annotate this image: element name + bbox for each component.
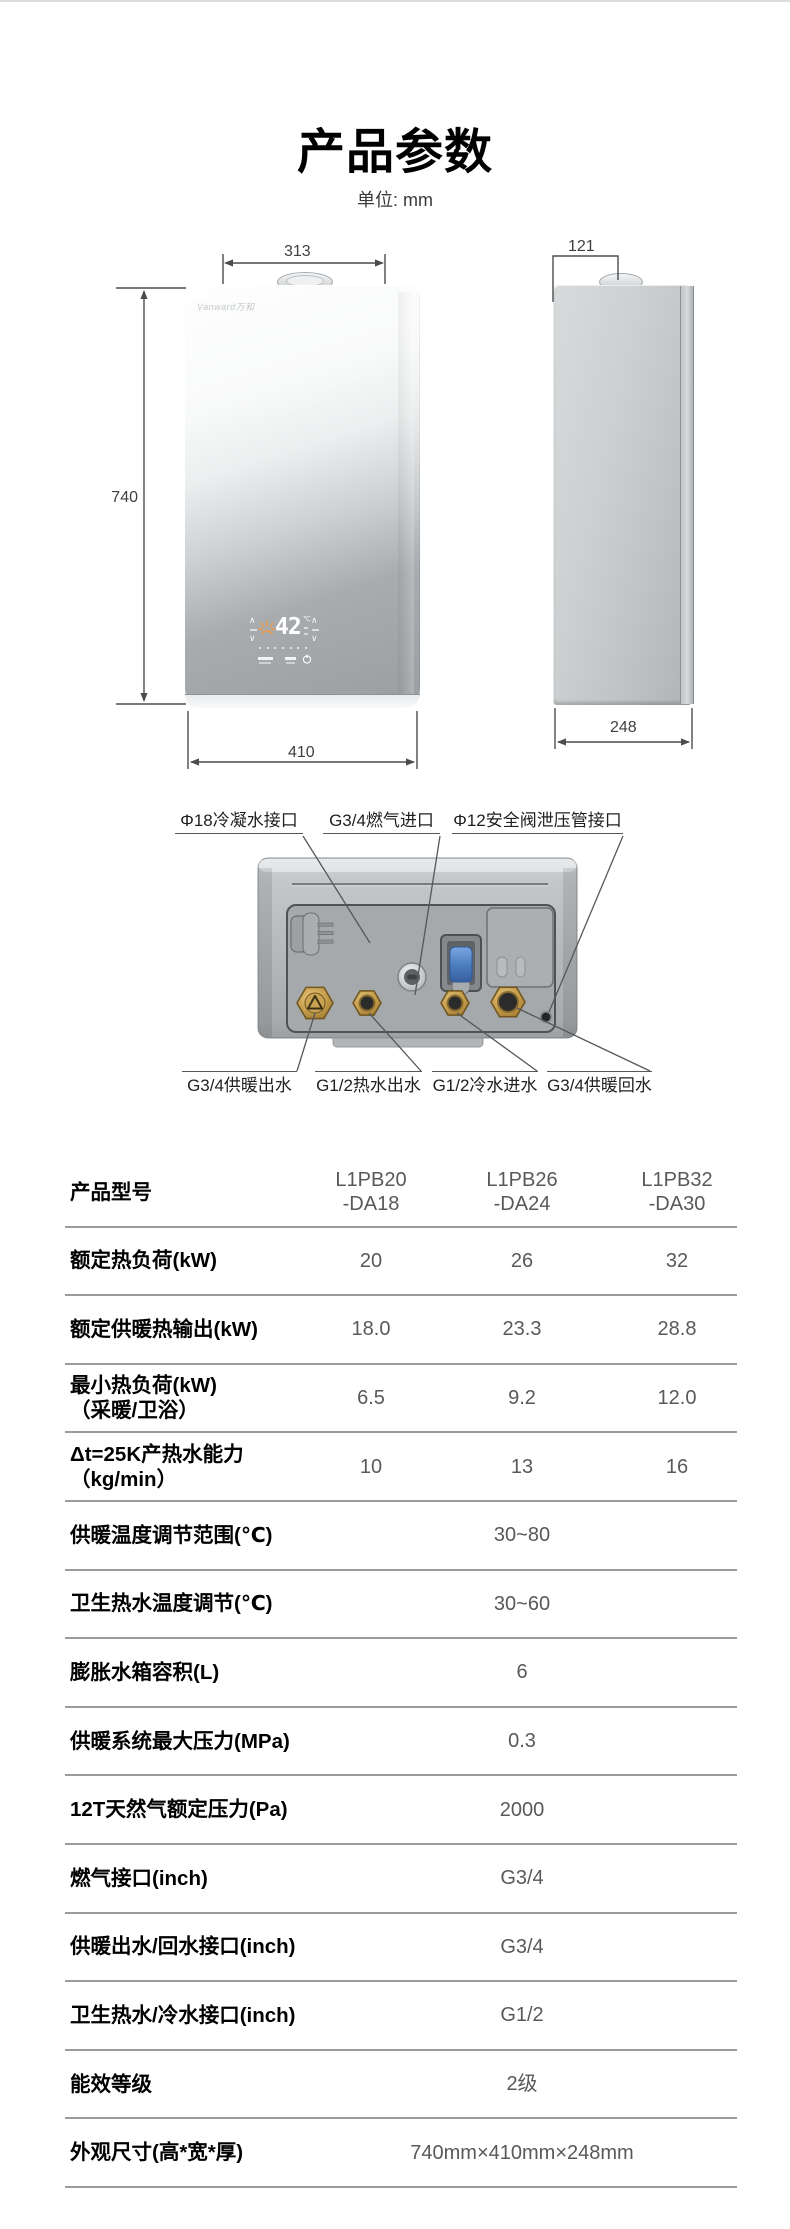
table-row: 能效等级 2级 xyxy=(65,2051,737,2120)
spec-value: G3/4 xyxy=(322,1935,722,1959)
bottom-view-device xyxy=(258,858,577,1047)
dim-front-bottom-width: 410 xyxy=(288,744,315,762)
spec-label: 卫生热水/冷水接口(inch) xyxy=(65,2003,296,2028)
spec-label: 燃气接口(inch) xyxy=(65,1866,208,1891)
safety-valve xyxy=(441,935,481,995)
spec-value: 740mm×410mm×248mm xyxy=(322,2141,722,2165)
spec-value: 13 xyxy=(447,1455,597,1479)
label-heating-return: G3/4供暖回水 xyxy=(547,1071,652,1095)
spec-value: 26 xyxy=(447,1249,597,1273)
dim-lines-side-top xyxy=(553,256,618,302)
label-gas-inlet: G3/4燃气进口 xyxy=(323,811,440,834)
table-row: 燃气接口(inch) G3/4 xyxy=(65,1845,737,1914)
table-row: 额定供暖热输出(kW) 18.0 23.3 28.8 xyxy=(65,1296,737,1365)
spec-value: 2000 xyxy=(322,1798,722,1822)
dim-front-height: 740 xyxy=(104,489,138,507)
spec-label: 供暖温度调节范围(℃) xyxy=(65,1523,272,1548)
dim-side-top-depth: 121 xyxy=(568,238,595,256)
spec-label: 供暖出水/回水接口(inch) xyxy=(65,1934,296,1959)
drain-fitting xyxy=(398,963,426,991)
spec-label: 额定供暖热输出(kW) xyxy=(65,1317,258,1342)
table-row: 供暖温度调节范围(℃) 30~80 xyxy=(65,1502,737,1571)
model-name: L1PB32-DA30 xyxy=(602,1168,752,1216)
spec-value: 6.5 xyxy=(296,1386,446,1410)
spec-value: G3/4 xyxy=(322,1866,722,1890)
spec-value: 16 xyxy=(602,1455,752,1479)
product-spec-page: 产品参数 单位: mm Vanward万和 ∧ ∨ 42 ℃ ∧ ∨ xyxy=(0,0,790,2229)
table-row: 供暖出水/回水接口(inch) G3/4 xyxy=(65,1914,737,1983)
spec-value: 18.0 xyxy=(296,1317,446,1341)
dim-side-bottom-depth: 248 xyxy=(610,719,637,737)
label-hot-water-outlet: G1/2热水出水 xyxy=(315,1071,422,1095)
spec-label: Δt=25K产热水能力（kg/min） xyxy=(65,1442,244,1492)
spec-value: 23.3 xyxy=(447,1317,597,1341)
dim-front-top-width: 313 xyxy=(284,243,311,261)
table-row: 外观尺寸(高*宽*厚) 740mm×410mm×248mm xyxy=(65,2119,737,2188)
cold-water-inlet-fitting xyxy=(441,991,469,1015)
spec-value: 2级 xyxy=(322,2072,722,2096)
spec-value: 30~80 xyxy=(322,1523,722,1547)
label-cold-water-inlet: G1/2冷水进水 xyxy=(432,1071,538,1095)
model-name: L1PB26-DA24 xyxy=(447,1168,597,1216)
table-row: 额定热负荷(kW) 20 26 32 xyxy=(65,1228,737,1297)
spec-value: 32 xyxy=(602,1249,752,1273)
spec-label: 12T天然气额定压力(Pa) xyxy=(65,1797,288,1822)
spec-label: 产品型号 xyxy=(65,1180,152,1205)
spec-value: 30~60 xyxy=(322,1592,722,1616)
heating-return-fitting xyxy=(491,987,525,1016)
spec-value: 6 xyxy=(322,1660,722,1684)
model-name: L1PB20-DA18 xyxy=(296,1168,446,1216)
label-condensate-port: Φ18冷凝水接口 xyxy=(175,811,303,834)
table-row: 12T天然气额定压力(Pa) 2000 xyxy=(65,1776,737,1845)
hot-water-outlet-fitting xyxy=(353,991,381,1015)
table-row: 卫生热水温度调节(℃) 30~60 xyxy=(65,1571,737,1640)
safety-valve-discharge-hole xyxy=(541,1012,552,1023)
spec-value: 10 xyxy=(296,1455,446,1479)
table-row: 膨胀水箱容积(L) 6 xyxy=(65,1639,737,1708)
spec-label: 卫生热水温度调节(℃) xyxy=(65,1591,272,1616)
table-row: Δt=25K产热水能力（kg/min） 10 13 16 xyxy=(65,1433,737,1502)
annotation-and-bottom-view-svg xyxy=(0,0,790,1110)
table-header-row: 产品型号 L1PB20-DA18 L1PB26-DA24 L1PB32-DA30 xyxy=(65,1159,737,1228)
table-row: 供暖系统最大压力(MPa) 0.3 xyxy=(65,1708,737,1777)
spec-value: 20 xyxy=(296,1249,446,1273)
spec-label: 额定热负荷(kW) xyxy=(65,1248,217,1273)
spec-value: 28.8 xyxy=(602,1317,752,1341)
spec-label: 能效等级 xyxy=(65,2072,152,2097)
label-safety-valve-port: Φ12安全阀泄压管接口 xyxy=(452,811,623,834)
spec-label: 最小热负荷(kW)（采暖/卫浴） xyxy=(65,1373,217,1423)
spec-label: 供暖系统最大压力(MPa) xyxy=(65,1729,290,1754)
spec-label: 膨胀水箱容积(L) xyxy=(65,1660,219,1685)
spec-value: 0.3 xyxy=(322,1729,722,1753)
spec-value: 12.0 xyxy=(602,1386,752,1410)
spec-value: 9.2 xyxy=(447,1386,597,1410)
spec-label: 外观尺寸(高*宽*厚) xyxy=(65,2140,243,2165)
table-row: 最小热负荷(kW)（采暖/卫浴） 6.5 9.2 12.0 xyxy=(65,1365,737,1434)
spec-value: G1/2 xyxy=(322,2003,722,2027)
label-heating-outlet: G3/4供暖出水 xyxy=(182,1071,297,1095)
table-row: 卫生热水/冷水接口(inch) G1/2 xyxy=(65,1982,737,2051)
spec-table: 产品型号 L1PB20-DA18 L1PB26-DA24 L1PB32-DA30… xyxy=(65,1159,737,2188)
